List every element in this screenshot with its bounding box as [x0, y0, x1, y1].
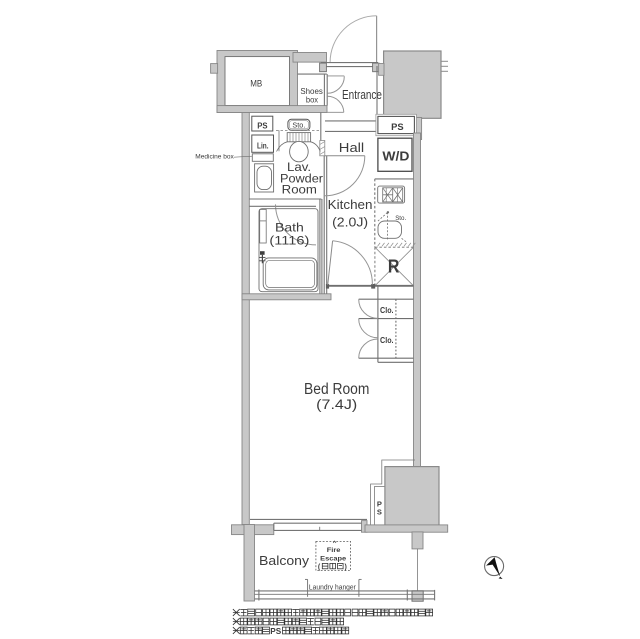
svg-text:R: R: [388, 256, 400, 276]
svg-text:Medicine box: Medicine box: [195, 154, 234, 161]
svg-text:Lin.: Lin.: [257, 141, 269, 150]
svg-text:(7.4J): (7.4J): [316, 396, 357, 412]
svg-text:Entrance: Entrance: [342, 87, 382, 102]
svg-text:Room: Room: [282, 183, 317, 197]
svg-text:Sto.: Sto.: [292, 123, 305, 130]
svg-text:S: S: [377, 507, 382, 516]
svg-text:MB: MB: [250, 79, 262, 89]
svg-text:(1116): (1116): [269, 234, 309, 248]
svg-text:Clo.: Clo.: [380, 306, 394, 315]
svg-text:PS: PS: [391, 122, 404, 133]
svg-text:Hall: Hall: [339, 140, 365, 155]
svg-text:Escape: Escape: [320, 556, 346, 563]
svg-text:Laundry hanger: Laundry hanger: [309, 584, 357, 591]
svg-text:Kitchen: Kitchen: [328, 197, 373, 212]
svg-text:): ): [345, 564, 347, 571]
svg-text:PS: PS: [270, 627, 281, 636]
svg-text:Balcony: Balcony: [259, 553, 310, 568]
svg-text:Sto.: Sto.: [395, 215, 406, 222]
svg-text:box: box: [306, 95, 318, 104]
svg-text:PS: PS: [257, 122, 268, 131]
svg-text:Bath: Bath: [275, 221, 304, 235]
svg-text:W/D: W/D: [382, 149, 409, 163]
svg-text:Clo.: Clo.: [380, 336, 394, 345]
svg-text:(2.0J): (2.0J): [332, 214, 368, 229]
svg-text:Fire: Fire: [327, 547, 341, 554]
